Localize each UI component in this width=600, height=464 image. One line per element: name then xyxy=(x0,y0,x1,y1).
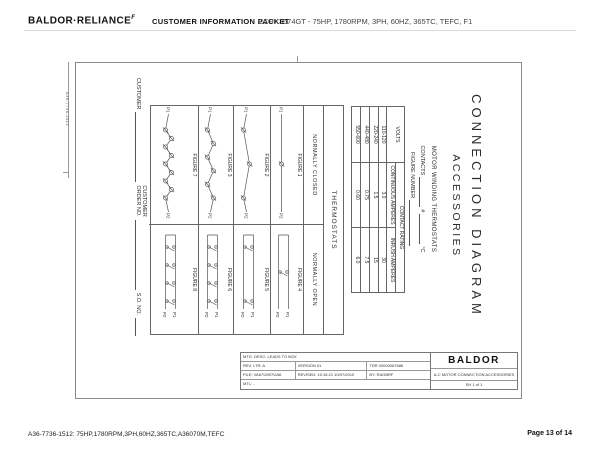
figure-cell-figure-4: FIGURE 4P1P2 xyxy=(271,225,303,334)
rating-cell-inrush: 30 xyxy=(378,228,387,293)
rating-row: 220-2401.515 xyxy=(370,107,379,293)
figure-label: FIGURE 1 xyxy=(296,106,302,224)
figure-number-fill-in-line: FIGURE NUMBER xyxy=(409,106,415,292)
baldor-reliance-logo: BALDOR·RELIANCEF xyxy=(28,15,135,26)
motor-spec: CCPX3674GT - 75HP, 1780RPM, 3PH, 60HZ, 3… xyxy=(258,17,472,26)
figure-cell-figure-3: FIGURE 3P1P2 xyxy=(199,106,233,225)
figure-circuit-closed: P1P2 xyxy=(151,106,190,224)
blank-underline xyxy=(419,214,425,244)
title-block-row-file: FILE: VA67\2697\2A6 REVISED: 10:16:21 10… xyxy=(241,371,430,380)
thermostat-section-header: MOTOR WINDING THERMOSTATS xyxy=(430,106,436,292)
svg-text:P1: P1 xyxy=(285,312,290,318)
title-block-row-mtl: MTL: - xyxy=(241,380,430,389)
svg-text:P1: P1 xyxy=(208,107,213,113)
figure-label: FIGURE 7 xyxy=(191,106,197,224)
version: VERSION 01 xyxy=(296,362,368,370)
normally-open-header: NORMALLY OPEN xyxy=(304,225,323,334)
drawing-subtitle: ACCESSORIES xyxy=(450,62,462,350)
normally-closed-header: NORMALLY CLOSED xyxy=(304,106,323,225)
figure-circuit-open: P1P2 xyxy=(151,225,190,333)
logo-mark: F xyxy=(131,15,135,21)
figure-label: FIGURE 5 xyxy=(263,225,269,334)
svg-text:P2: P2 xyxy=(279,213,284,219)
figure-label: FIGURE 4 xyxy=(296,225,302,334)
drawing-sheet-title: A-C MOTOR CONNECTION ACCESSORIES xyxy=(431,369,517,381)
logo-text: BALDOR·RELIANCE xyxy=(28,15,131,26)
rating-row: 550-6000.606.0 xyxy=(352,107,361,293)
svg-text:P2: P2 xyxy=(166,213,171,219)
title-block: MTG. DESC: LEADS TO BOX REV. LTR: A VERS… xyxy=(240,352,518,390)
svg-text:P1: P1 xyxy=(244,107,249,113)
figure-circuit-closed: P1P2 xyxy=(235,106,262,224)
thermostat-figure-box: THERMOSTATS NORMALLY CLOSED NORMALLY OPE… xyxy=(150,105,344,335)
svg-text:P1: P1 xyxy=(172,312,177,318)
figure-row: FIGURE 7P1P2FIGURE 8P1P2 xyxy=(149,106,198,334)
cip-document-page: { "header": { "logo": "BALDOR·RELIANCE",… xyxy=(0,0,600,464)
rating-cell-continuous: 1.5 xyxy=(370,163,379,228)
figure-label: FIGURE 3 xyxy=(226,106,232,224)
blank-underline xyxy=(135,220,141,290)
figure-cell-figure-5: FIGURE 5P1P2 xyxy=(234,225,270,334)
contacts-hash: # xyxy=(419,209,425,212)
by-author: BY: RAGBRF xyxy=(367,371,430,379)
customer-order-no-label: CUSTOMER ORDER NO. xyxy=(135,185,147,216)
blank-underline xyxy=(135,112,141,182)
svg-text:P2: P2 xyxy=(204,312,209,318)
svg-text:P2: P2 xyxy=(208,213,213,219)
figure-label: FIGURE 2 xyxy=(263,106,269,224)
contacts-unit: °C xyxy=(419,246,425,252)
figure-label: FIGURE 6 xyxy=(226,225,232,334)
volts-header: VOLTS xyxy=(387,107,405,163)
tdr-number: TDR 00000087686 xyxy=(367,362,430,370)
contact-rating-header: CONTACT RATING xyxy=(396,163,405,293)
svg-text:P1: P1 xyxy=(166,107,171,113)
blank-underline xyxy=(409,200,415,246)
edge-drawing-number: A36-7736-1512 xyxy=(65,92,70,126)
figure-row: FIGURE 1P1P2FIGURE 4P1P2 xyxy=(270,106,303,334)
rev-ltr: REV. LTR: A xyxy=(241,362,296,370)
revised-timestamp: REVISED: 10:16:21 10/07/2010 xyxy=(296,371,368,379)
figure-label: FIGURE 8 xyxy=(191,225,197,334)
rating-cell-continuous: 0.75 xyxy=(361,163,370,228)
svg-text:P2: P2 xyxy=(240,312,245,318)
figure-cell-figure-1: FIGURE 1P1P2 xyxy=(271,106,303,225)
blank-underline xyxy=(419,177,425,207)
thermostats-header: THERMOSTATS xyxy=(323,106,343,334)
figure-cell-figure-6: FIGURE 6P1P2 xyxy=(199,225,233,334)
figure-row: FIGURE 2P1P2FIGURE 5P1P2 xyxy=(233,106,270,334)
rating-cell-continuous: 3.0 xyxy=(378,163,387,228)
rating-cell-volts: 220-240 xyxy=(370,107,379,163)
rating-table-body: 110-1203.030220-2401.515440-4800.757.555… xyxy=(352,107,387,293)
title-block-right: BALDOR A-C MOTOR CONNECTION ACCESSORIES … xyxy=(431,353,517,389)
figure-rows: FIGURE 1P1P2FIGURE 4P1P2FIGURE 2P1P2FIGU… xyxy=(149,106,303,334)
footer-spec: A36-7736-1512: 75HP,1780RPM,3PH,60HZ,365… xyxy=(28,431,224,438)
customer-order-line1: CUSTOMER xyxy=(141,185,147,216)
contacts-fill-in-line: CONTACTS # °C xyxy=(419,106,425,292)
rating-header-row: VOLTS CONTACT RATING xyxy=(396,107,405,293)
title-block-row-rev: REV. LTR: A VERSION 01 TDR 00000087686 xyxy=(241,362,430,371)
drawing-title: CONNECTION DIAGRAM xyxy=(469,62,484,350)
file-path: FILE: VA67\2697\2A6 xyxy=(241,371,296,379)
sheet-number: SH 1 of 1 xyxy=(431,381,517,389)
svg-text:P1: P1 xyxy=(214,312,219,318)
header-rule xyxy=(24,30,576,31)
figure-circuit-closed: P1P2 xyxy=(200,106,225,224)
contacts-label: CONTACTS xyxy=(419,145,425,175)
blank-underline xyxy=(135,318,141,336)
figure-circuit-open: P1P2 xyxy=(200,225,225,333)
rotated-drawing-content: CONNECTION DIAGRAM ACCESSORIES MOTOR WIN… xyxy=(78,62,518,350)
rating-cell-volts: 110-120 xyxy=(378,107,387,163)
baldor-logo: BALDOR xyxy=(431,353,517,369)
continuous-amperes-header: CONTINUOUS AMPERES xyxy=(387,163,396,228)
mtl: MTL: - xyxy=(241,380,430,389)
page-number: Page 13 of 14 xyxy=(500,430,572,437)
inrush-amperes-header: INRUSH AMPERES xyxy=(387,228,396,293)
mtg-desc: MTG. DESC: LEADS TO BOX xyxy=(241,353,430,361)
figure-cell-figure-2: FIGURE 2P1P2 xyxy=(234,106,270,225)
border-tick xyxy=(63,172,69,173)
customer-order-line2: ORDER NO. xyxy=(135,185,141,216)
rating-cell-volts: 550-600 xyxy=(352,107,361,163)
rating-row: 110-1203.030 xyxy=(378,107,387,293)
svg-text:P1: P1 xyxy=(279,107,284,113)
figure-number-label: FIGURE NUMBER xyxy=(409,152,415,198)
rating-cell-inrush: 7.5 xyxy=(361,228,370,293)
contact-rating-table: VOLTS CONTACT RATING CONTINUOUS AMPERES … xyxy=(352,106,406,293)
figure-cell-figure-7: FIGURE 7P1P2 xyxy=(149,106,198,225)
title-block-row-mtg: MTG. DESC: LEADS TO BOX xyxy=(241,353,430,362)
rating-cell-continuous: 0.60 xyxy=(352,163,361,228)
figure-circuit-closed: P1P2 xyxy=(272,106,295,224)
figure-row: FIGURE 3P1P2FIGURE 6P1P2 xyxy=(198,106,233,334)
title-block-left: MTG. DESC: LEADS TO BOX REV. LTR: A VERS… xyxy=(241,353,431,389)
svg-text:P2: P2 xyxy=(244,213,249,219)
svg-text:P2: P2 xyxy=(162,312,167,318)
figure-cell-figure-8: FIGURE 8P1P2 xyxy=(149,225,198,334)
rating-cell-volts: 440-480 xyxy=(361,107,370,163)
rating-row: 440-4800.757.5 xyxy=(361,107,370,293)
so-no-label: S.O. NO. xyxy=(135,293,141,315)
svg-text:P1: P1 xyxy=(250,312,255,318)
rating-cell-inrush: 6.0 xyxy=(352,228,361,293)
figure-circuit-open: P1P2 xyxy=(272,225,295,333)
figure-circuit-open: P1P2 xyxy=(235,225,262,333)
rating-cell-inrush: 15 xyxy=(370,228,379,293)
customer-label: CUSTOMER xyxy=(135,78,141,109)
svg-text:P2: P2 xyxy=(275,312,280,318)
figure-box-subheaders: NORMALLY CLOSED NORMALLY OPEN xyxy=(303,106,323,334)
customer-fill-in-line: CUSTOMER CUSTOMER ORDER NO. S.O. NO. xyxy=(135,78,147,336)
